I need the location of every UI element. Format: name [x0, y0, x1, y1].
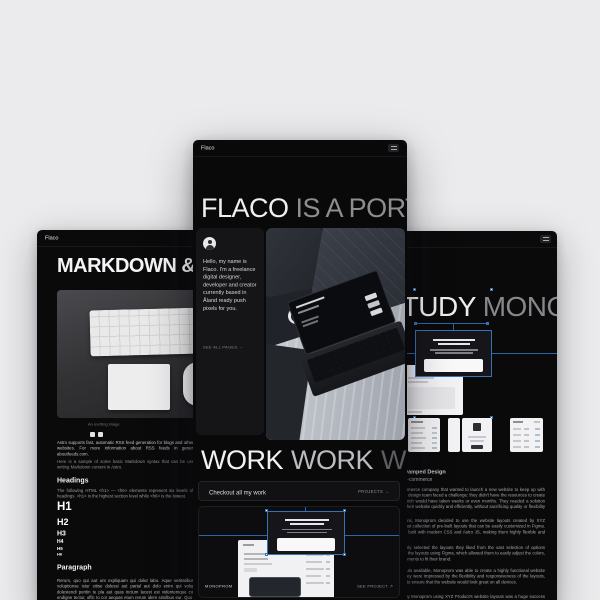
meta-industry: E-commerce — [404, 477, 432, 483]
h6-sample: H6 — [57, 552, 62, 557]
logo-text[interactable]: Flaco — [45, 235, 58, 241]
mockup-card-sliver — [448, 418, 460, 452]
hero-photo — [266, 228, 405, 440]
mockup-card-qr — [462, 418, 492, 452]
menu-icon[interactable] — [540, 235, 551, 243]
measure-dot — [486, 322, 489, 325]
mockup-card-table — [510, 418, 543, 452]
see-all-pages-link[interactable]: SEE ALL PAGES → — [203, 345, 243, 350]
work-word-3: WORK — [381, 445, 407, 475]
selection-handle[interactable] — [490, 288, 493, 291]
selection-handle[interactable] — [265, 509, 268, 512]
hero-heading: FLACO IS A PORTFOLIO — [201, 195, 407, 222]
selected-frame[interactable] — [415, 330, 492, 377]
project-name: MONOPROM — [205, 584, 233, 589]
guide-line-right — [492, 353, 557, 354]
inline-badge — [98, 432, 103, 437]
selection-handle[interactable] — [343, 553, 346, 556]
intro-paragraph: Astro supports fast, automatic RSS feed … — [57, 440, 209, 457]
sample-paragraph: Here is a sample of some basic Markdown … — [57, 459, 209, 470]
hero-heading-primary: FLACO — [201, 193, 289, 223]
h2-sample: H2 — [57, 517, 69, 527]
see-project-link[interactable]: SEE PROJECT ↗ — [357, 584, 393, 589]
center-topbar: Flaco — [193, 140, 407, 157]
work-word-1: WORK — [201, 445, 283, 475]
selection-handle[interactable] — [343, 509, 346, 512]
mockup-card-list — [408, 418, 440, 452]
headings-section-title: Headings — [57, 476, 89, 484]
image-caption: An exciting image — [88, 422, 120, 427]
h1-sample: H1 — [57, 501, 72, 513]
h5-sample: H5 — [57, 546, 63, 551]
menu-icon[interactable] — [388, 144, 399, 152]
desktop-background: Flaco MARKDOWN & MDX An exciting image A… — [0, 0, 600, 600]
avatar — [203, 237, 216, 250]
work-word-2: WORK — [291, 445, 373, 475]
paragraph-section-title: Paragraph — [57, 563, 92, 571]
profile-bio: Hello, my name is Flaco. I'm a freelance… — [203, 258, 257, 313]
work-heading: WORKWORKWORK — [201, 447, 407, 474]
inline-badge — [90, 432, 95, 437]
h3-sample: H3 — [57, 529, 66, 537]
project-card[interactable]: MONOPROM SEE PROJECT ↗ — [198, 506, 400, 598]
measure-line — [415, 323, 488, 324]
window-home-page: Flaco FLACO IS A PORTFOLIO Hello, my nam… — [193, 140, 407, 600]
h4-sample: H4 — [57, 539, 63, 545]
profile-card: Hello, my name is Flaco. I'm a freelance… — [196, 228, 264, 435]
selection-handle[interactable] — [265, 553, 268, 556]
selected-frame[interactable] — [267, 511, 345, 555]
lorem-paragraph: Rerum, quo qui aut unt expliquam qui dol… — [57, 578, 209, 600]
selection-handle[interactable] — [413, 288, 416, 291]
measure-dot — [414, 322, 417, 325]
checkout-label: Checkout all my work — [209, 489, 266, 496]
logo-text[interactable]: Flaco — [201, 145, 214, 151]
projects-link[interactable]: PROJECTS → — [358, 489, 389, 494]
headings-description: The following HTML <h1> — <h6> elements … — [57, 488, 209, 499]
hero-heading-secondary: IS A PORTFOLIO — [289, 193, 407, 223]
trackpad — [108, 364, 170, 410]
checkout-bar: Checkout all my work PROJECTS → — [198, 481, 400, 501]
case-study-title-secondary: MONOPROM — [475, 291, 557, 322]
